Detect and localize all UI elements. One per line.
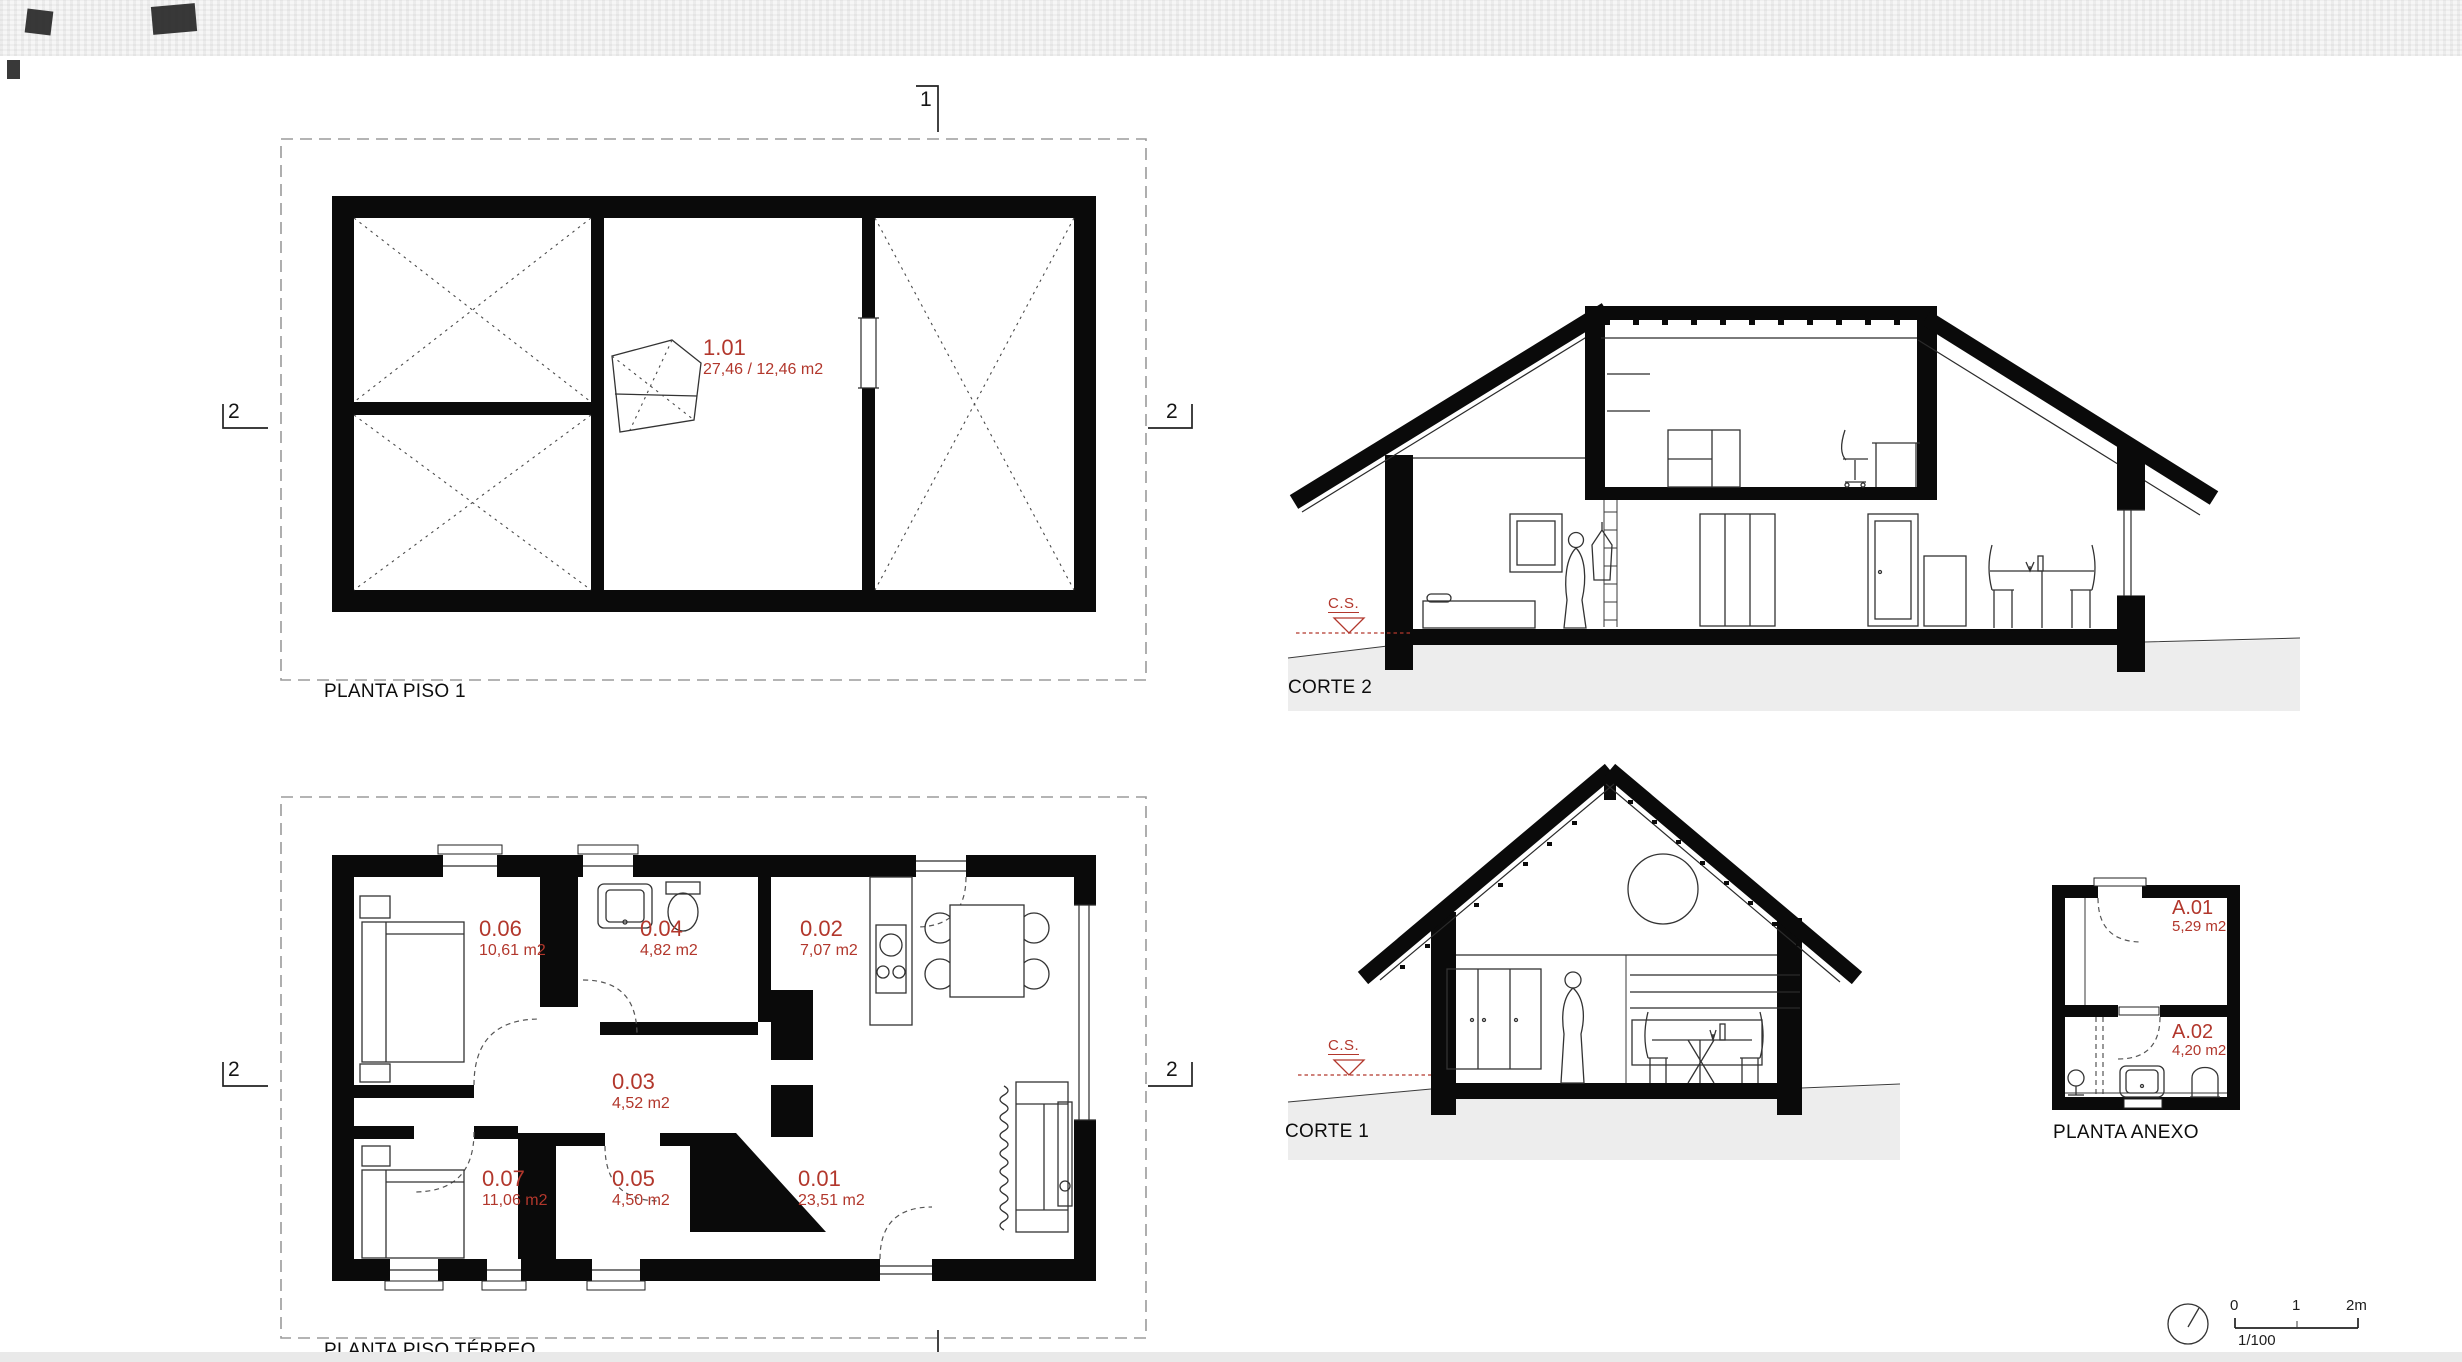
room-number: 0.05 (612, 1167, 670, 1192)
section-wall (1431, 912, 1456, 1115)
roof-slope (1610, 770, 1857, 978)
drawing-title-planta-piso-1: PLANTA PISO 1 (324, 681, 466, 703)
door-icon (1868, 514, 1918, 626)
room-number: 0.03 (612, 1070, 670, 1095)
room-number: 0.02 (800, 917, 858, 942)
window-sill (587, 1281, 645, 1290)
wardrobe-icon (1700, 514, 1775, 626)
section-wall (2117, 446, 2145, 510)
bed-icon (362, 1146, 464, 1258)
hanging-clothes-icon (1592, 522, 1612, 580)
room-number: 1.01 (703, 336, 823, 361)
room-area: 4,52 m2 (612, 1095, 670, 1113)
room-label-0-02: 0.02 7,07 m2 (800, 917, 858, 960)
room-number: A.01 (2172, 897, 2226, 919)
roof-slope (1294, 310, 1606, 502)
roof-underside-line (1302, 330, 1598, 512)
interior-wall (556, 1133, 605, 1146)
interior-wall (354, 402, 591, 415)
section-marker-2-right: 2 (1166, 400, 1178, 424)
door-swing-arc (2118, 1017, 2160, 1059)
bottom-edge-strip (0, 1352, 2462, 1362)
interior-wall (758, 877, 771, 1022)
room-label-1-01: 1.01 27,46 / 12,46 m2 (703, 336, 823, 379)
roof-slope (1363, 770, 1610, 978)
floor-slab (1431, 1083, 1802, 1099)
level-marker-label: C.S. (1328, 595, 1359, 613)
room-area: 7,07 m2 (800, 942, 858, 960)
level-marker-triangle (1334, 1060, 1364, 1075)
desk-icon (1872, 443, 1920, 487)
planta-piso-1-drawing (223, 86, 1192, 680)
interior-wall (2065, 1005, 2118, 1017)
room-area: 4,82 m2 (640, 942, 698, 960)
level-marker-triangle (1334, 618, 1364, 633)
tv-console-icon (1058, 1102, 1072, 1206)
north-compass-icon (2168, 1304, 2208, 1344)
interior-wall (2160, 1005, 2227, 1017)
floor-slab (1405, 629, 2145, 645)
section-marker-1-top: 1 (920, 88, 932, 112)
shelves-icon (1630, 975, 1800, 1008)
room-number: A.02 (2172, 1021, 2226, 1043)
interior-wall (660, 1133, 690, 1146)
door-opening (880, 1259, 932, 1281)
room-area: 11,06 m2 (482, 1192, 548, 1210)
planta-piso-terreo-drawing (223, 797, 1192, 1362)
cabinet-icon (1668, 430, 1740, 487)
window-sill (438, 845, 502, 854)
window-frame (2117, 510, 2145, 596)
section-marker-2-right: 2 (1166, 1058, 1178, 1082)
room-area: 4,20 m2 (2172, 1043, 2226, 1060)
room-label-0-07: 0.07 11,06 m2 (482, 1167, 548, 1210)
ground-fill (1288, 639, 2300, 711)
scale-tick-0: 0 (2230, 1297, 2238, 1314)
section-wall (1385, 455, 1413, 670)
person-figure (1564, 533, 1586, 629)
architectural-drawing-sheet: PLANTA PISO 1 PLANTA PISO TÉRREO CORTE 2… (0, 0, 2462, 1362)
plan-boundary (281, 797, 1146, 1338)
person-figure (1561, 972, 1584, 1083)
window-opening (1074, 905, 1096, 1120)
kitchen-counter-icon (870, 877, 912, 1025)
section-wall (2117, 596, 2145, 672)
mezzanine-floor (1585, 487, 1937, 500)
interior-wall (354, 1085, 474, 1098)
desk-chair-icon (1842, 430, 1868, 487)
roof-slope (1926, 318, 2214, 498)
bed-icon (1423, 594, 1535, 628)
dining-table-icon (925, 905, 1049, 997)
drawing-title-corte-1: CORTE 1 (1285, 1121, 1369, 1143)
void-cross (875, 218, 1074, 590)
door-opening (2098, 885, 2142, 898)
room-area: 10,61 m2 (479, 942, 546, 960)
core-wall (771, 1085, 813, 1137)
room-label-a-01: A.01 5,29 m2 (2172, 897, 2226, 936)
scale-tick-1: 1 (2292, 1297, 2300, 1314)
door-opening (2124, 1099, 2162, 1108)
room-label-0-06: 0.06 10,61 m2 (479, 917, 546, 960)
section-wall (1777, 918, 1802, 1115)
room-area: 5,29 m2 (2172, 919, 2226, 936)
shelves-icon (1607, 374, 1650, 411)
corte-2-drawing (1288, 306, 2300, 711)
room-label-0-03: 0.03 4,52 m2 (612, 1070, 670, 1113)
door-swing-arc (414, 1132, 474, 1192)
window-sill (578, 845, 638, 854)
compass-needle (2188, 1308, 2199, 1327)
entry-door-opening (916, 855, 966, 877)
shower-screen-dashed (2096, 1017, 2103, 1095)
room-number: 0.04 (640, 917, 698, 942)
room-number: 0.01 (798, 1167, 865, 1192)
door-frame (2094, 878, 2146, 886)
scale-ratio: 1/100 (2238, 1332, 2276, 1349)
roof-underside-line (1918, 340, 2200, 515)
dining-set-icon (1989, 545, 2095, 628)
void-cross (354, 218, 591, 402)
room-area: 4,50 m2 (612, 1192, 670, 1210)
corte-1-drawing (1288, 770, 1900, 1160)
picture-frame-icon (1510, 514, 1562, 572)
room-label-0-04: 0.04 4,82 m2 (640, 917, 698, 960)
drawing-title-planta-anexo: PLANTA ANEXO (2053, 1122, 2199, 1144)
core-wall (771, 990, 813, 1060)
interior-wall (862, 218, 875, 590)
interior-wall (474, 1126, 518, 1139)
interior-wall (690, 1133, 736, 1232)
door-swing-arc (474, 1019, 540, 1085)
interior-wall (591, 218, 604, 590)
section-marker-2-left: 2 (228, 400, 240, 424)
scale-tick-2m: 2m (2346, 1297, 2367, 1314)
section-marker-2-left: 2 (228, 1058, 240, 1082)
bed-icon (360, 896, 464, 1082)
mezzanine-wall (1585, 308, 1605, 500)
window-sill (385, 1281, 443, 1290)
round-window-icon (1628, 854, 1698, 924)
interior-wall (354, 1126, 414, 1139)
wardrobe-icon (1447, 969, 1541, 1069)
room-label-a-02: A.02 4,20 m2 (2172, 1021, 2226, 1060)
flat-roof (1585, 306, 1937, 320)
door-swing-arc (880, 1207, 932, 1259)
room-label-0-05: 0.05 4,50 m2 (612, 1167, 670, 1210)
stair-icon (612, 340, 701, 432)
room-area: 23,51 m2 (798, 1192, 865, 1210)
room-area: 27,46 / 12,46 m2 (703, 361, 823, 379)
cabinet-icon (1924, 556, 1966, 626)
door-leaf (2119, 1007, 2159, 1015)
room-label-0-01: 0.01 23,51 m2 (798, 1167, 865, 1210)
door-swing-arc (2098, 898, 2142, 942)
level-marker-label: C.S. (1328, 1037, 1359, 1055)
shower-icon (2068, 1070, 2084, 1095)
drawing-title-corte-2: CORTE 2 (1288, 677, 1372, 699)
sink-icon (2120, 1066, 2164, 1097)
interior-wall (600, 1022, 758, 1035)
mezzanine-wall (1917, 312, 1937, 500)
window-sill (482, 1281, 526, 1290)
room-number: 0.06 (479, 917, 546, 942)
room-number: 0.07 (482, 1167, 548, 1192)
void-cross (354, 415, 591, 590)
